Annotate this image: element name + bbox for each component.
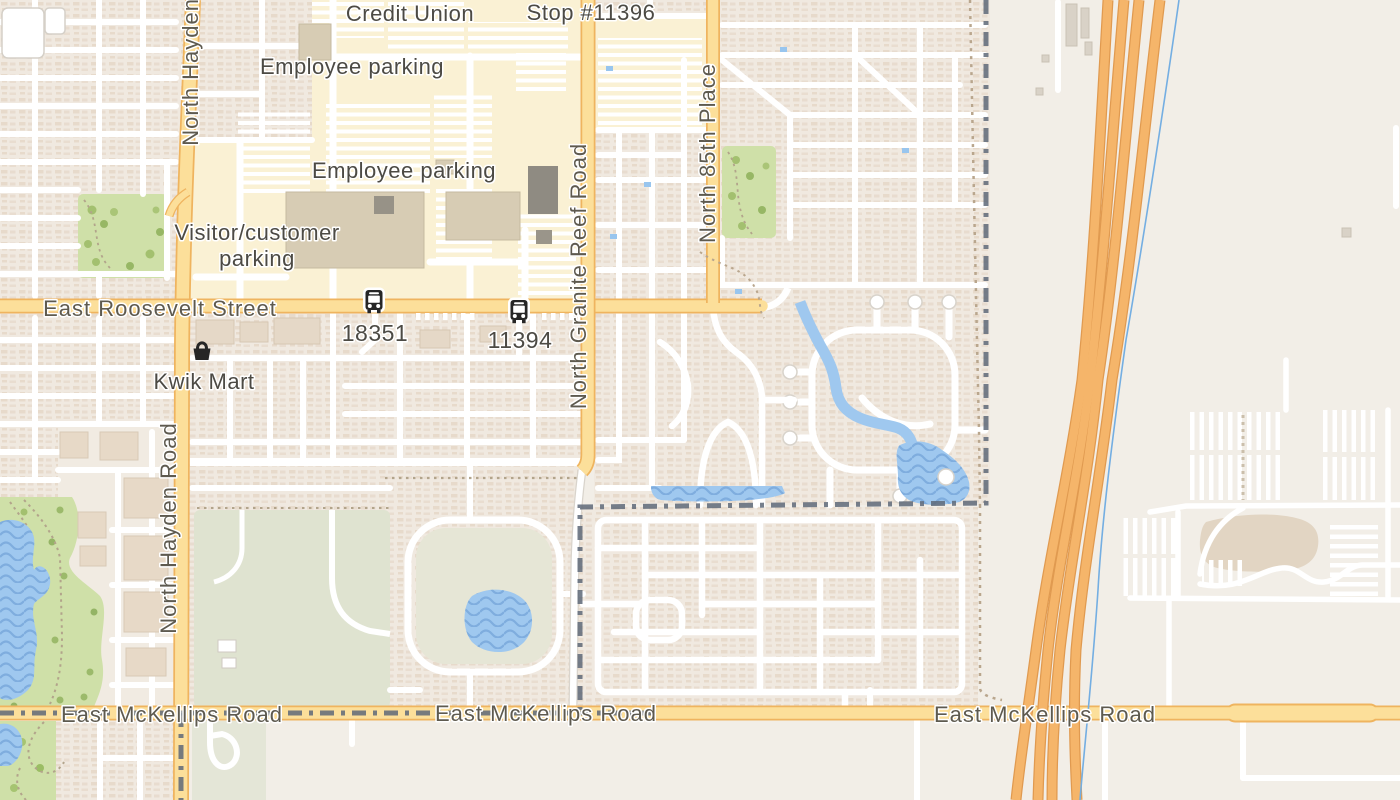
svg-text:parking: parking (219, 246, 295, 271)
svg-text:Credit Union: Credit Union (346, 1, 474, 26)
svg-text:East McKellips Road: East McKellips Road (934, 702, 1156, 727)
svg-text:North Hayden Road: North Hayden Road (178, 0, 203, 146)
svg-text:Kwik Mart: Kwik Mart (153, 369, 254, 394)
svg-text:East McKellips Road: East McKellips Road (435, 701, 657, 726)
svg-text:11394: 11394 (488, 327, 553, 353)
svg-text:North 85th Place: North 85th Place (695, 63, 720, 243)
svg-text:Employee parking: Employee parking (312, 158, 496, 183)
svg-text:Employee parking: Employee parking (260, 54, 444, 79)
svg-text:East McKellips Road: East McKellips Road (61, 702, 283, 727)
svg-text:Visitor/customer: Visitor/customer (174, 220, 339, 245)
svg-text:Stop #11396: Stop #11396 (527, 0, 656, 25)
svg-text:North Hayden Road: North Hayden Road (156, 422, 181, 633)
svg-text:East Roosevelt Street: East Roosevelt Street (43, 296, 277, 321)
svg-text:North Granite Reef Road: North Granite Reef Road (566, 143, 591, 409)
svg-text:18351: 18351 (342, 320, 408, 346)
